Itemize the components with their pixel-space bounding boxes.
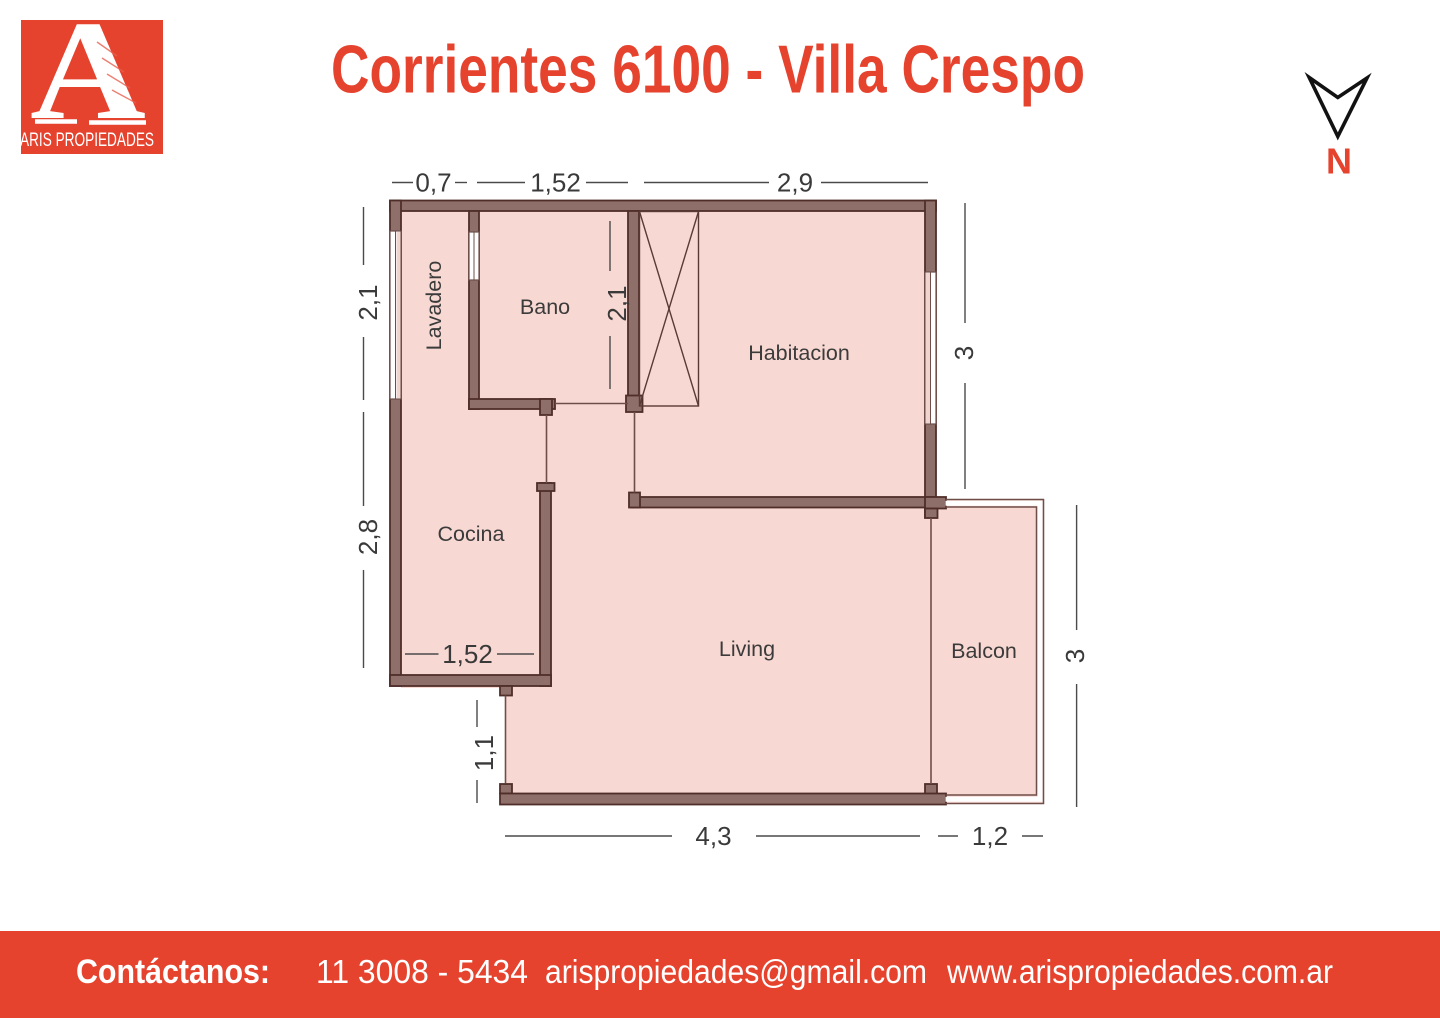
svg-text:4,3: 4,3 bbox=[695, 821, 731, 851]
svg-text:arispropiedades@gmail.com: arispropiedades@gmail.com bbox=[545, 953, 927, 990]
svg-text:Balcon: Balcon bbox=[951, 639, 1017, 663]
svg-text:Lavadero: Lavadero bbox=[422, 261, 446, 351]
svg-text:1,52: 1,52 bbox=[530, 168, 581, 198]
svg-text:N: N bbox=[1326, 141, 1352, 182]
svg-text:0,7: 0,7 bbox=[415, 168, 451, 198]
svg-text:www.arispropiedades.com.ar: www.arispropiedades.com.ar bbox=[946, 953, 1333, 990]
svg-text:Habitacion: Habitacion bbox=[748, 341, 850, 365]
svg-text:2,8: 2,8 bbox=[353, 519, 383, 555]
svg-text:11 3008 - 5434: 11 3008 - 5434 bbox=[316, 953, 528, 990]
svg-text:Bano: Bano bbox=[520, 295, 570, 319]
svg-text:3: 3 bbox=[949, 346, 979, 360]
svg-text:1,1: 1,1 bbox=[469, 735, 499, 771]
svg-text:Cocina: Cocina bbox=[438, 522, 505, 546]
svg-text:2,1: 2,1 bbox=[602, 285, 632, 321]
svg-text:Living: Living bbox=[719, 637, 775, 661]
svg-text:Contáctanos:: Contáctanos: bbox=[76, 953, 270, 991]
svg-text:3: 3 bbox=[1060, 649, 1090, 663]
svg-text:ARIS PROPIEDADES: ARIS PROPIEDADES bbox=[20, 130, 154, 151]
svg-text:1,2: 1,2 bbox=[972, 821, 1008, 851]
svg-text:Corrientes 6100 - Villa Crespo: Corrientes 6100 - Villa Crespo bbox=[331, 32, 1085, 108]
svg-text:A: A bbox=[30, 0, 146, 149]
svg-text:1,52: 1,52 bbox=[442, 639, 493, 669]
svg-text:2,1: 2,1 bbox=[353, 284, 383, 320]
svg-text:2,9: 2,9 bbox=[777, 168, 813, 198]
